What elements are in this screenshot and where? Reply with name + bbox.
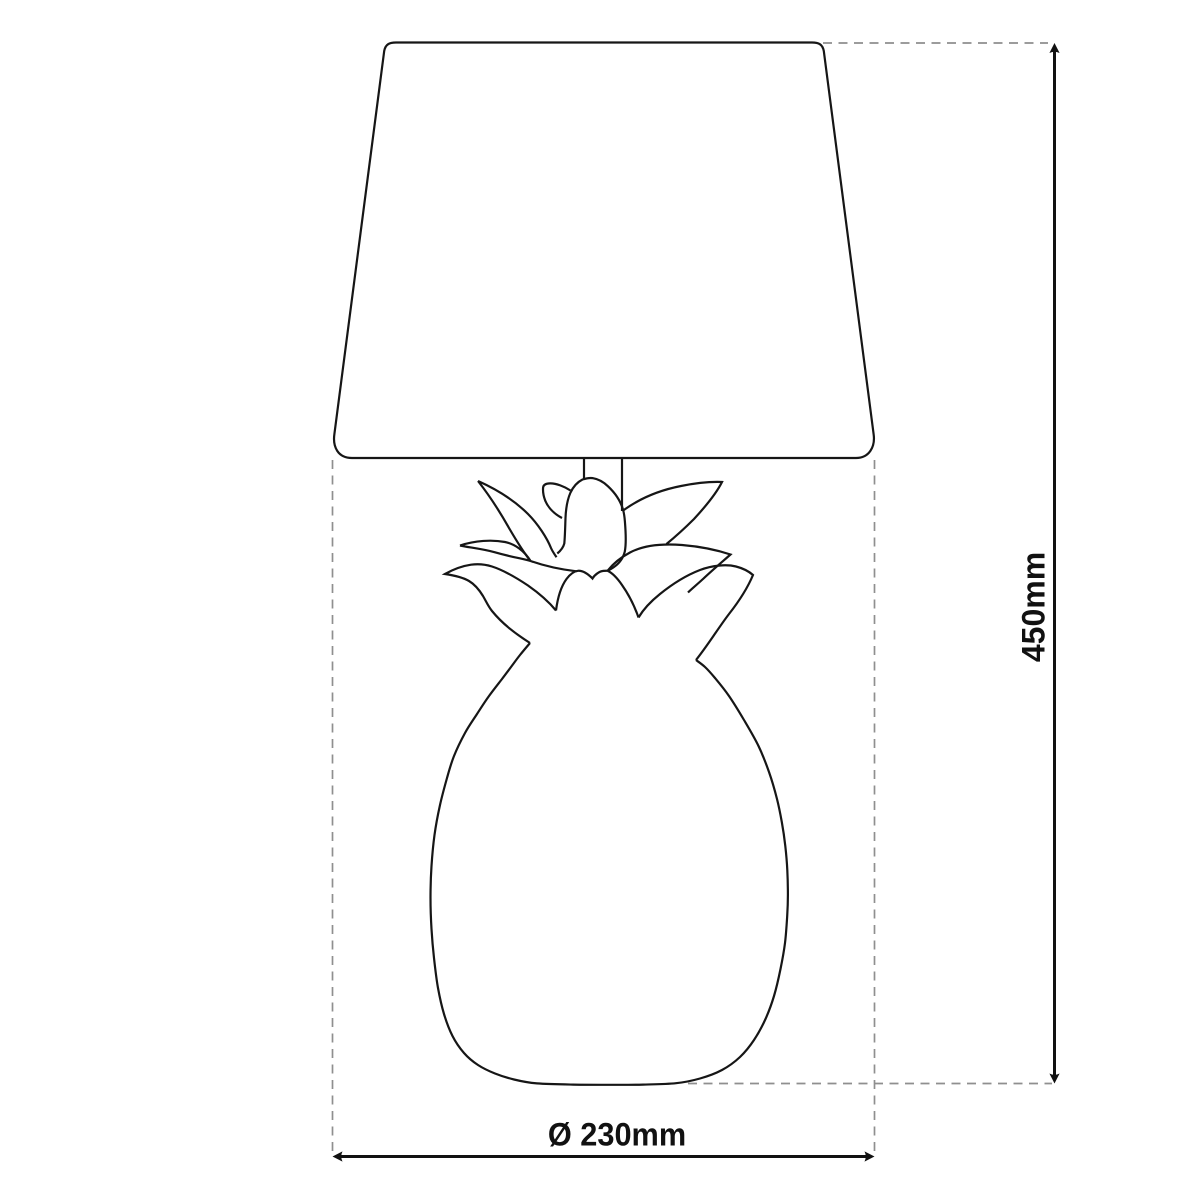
svg-text:450mm: 450mm (1016, 552, 1052, 662)
svg-text:Ø 230mm: Ø 230mm (548, 1117, 686, 1153)
